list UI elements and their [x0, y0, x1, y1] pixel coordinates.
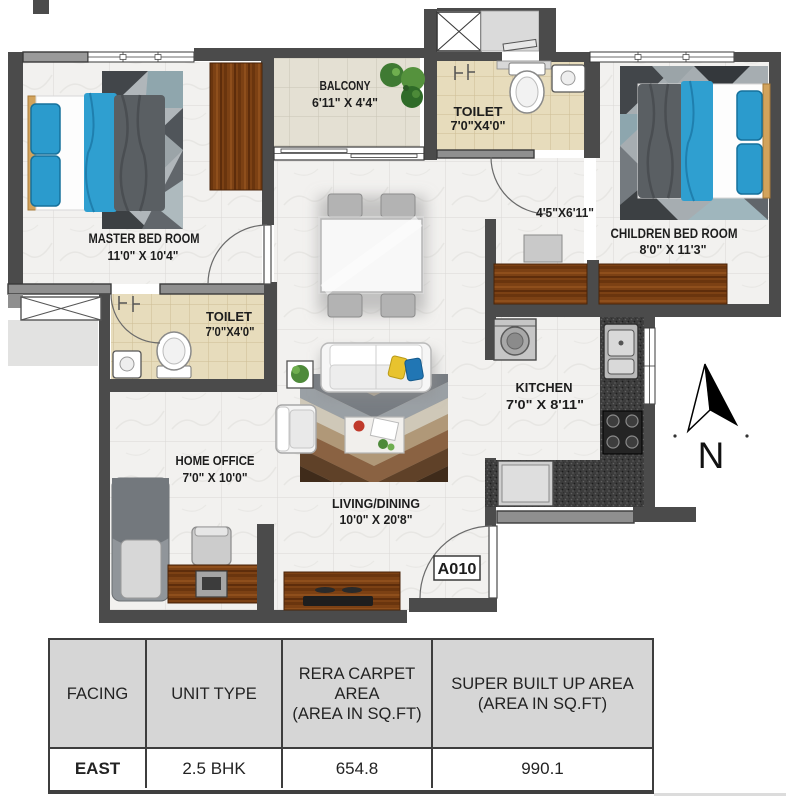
svg-text:LIVING/DINING: LIVING/DINING [332, 496, 420, 511]
svg-text:7'0"X4'0": 7'0"X4'0" [206, 325, 255, 339]
svg-text:MASTER BED ROOM: MASTER BED ROOM [89, 231, 200, 246]
svg-text:10'0" X 20'8": 10'0" X 20'8" [340, 512, 413, 527]
svg-text:HOME OFFICE: HOME OFFICE [176, 453, 255, 468]
svg-text:4'5"X6'11": 4'5"X6'11" [536, 205, 594, 220]
svg-text:7'0" X 10'0": 7'0" X 10'0" [183, 470, 248, 485]
svg-text:N: N [698, 435, 725, 476]
svg-text:11'0" X 10'4": 11'0" X 10'4" [108, 248, 179, 263]
svg-text:TOILET: TOILET [454, 105, 503, 119]
svg-text:KITCHEN: KITCHEN [516, 380, 573, 395]
svg-text:CHILDREN BED ROOM: CHILDREN BED ROOM [611, 226, 738, 241]
svg-text:A010: A010 [438, 561, 477, 578]
svg-text:8'0" X 11'3": 8'0" X 11'3" [640, 242, 707, 257]
svg-text:TOILET: TOILET [206, 310, 252, 324]
svg-text:BALCONY: BALCONY [320, 79, 372, 93]
svg-text:7'0" X 8'11": 7'0" X 8'11" [506, 397, 584, 412]
svg-text:6'11" X 4'4": 6'11" X 4'4" [312, 96, 378, 110]
svg-text:7'0"X4'0": 7'0"X4'0" [451, 119, 506, 133]
